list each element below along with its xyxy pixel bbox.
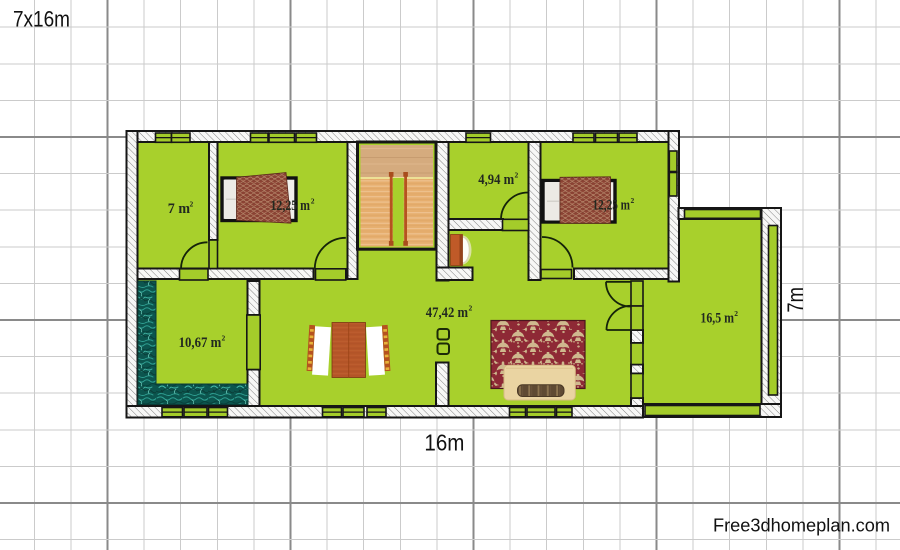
svg-text:4,94 m: 4,94 m [478, 172, 514, 188]
svg-text:2: 2 [190, 200, 194, 209]
svg-text:7m: 7m [783, 287, 808, 313]
svg-text:2: 2 [469, 304, 473, 313]
svg-text:7 m: 7 m [168, 201, 191, 217]
svg-text:2: 2 [515, 171, 519, 180]
svg-text:12,25 m: 12,25 m [593, 198, 631, 214]
svg-text:2: 2 [222, 334, 226, 343]
svg-text:16,5 m: 16,5 m [700, 311, 734, 327]
svg-text:2: 2 [631, 196, 635, 205]
svg-text:2: 2 [734, 309, 738, 318]
svg-text:47,42 m: 47,42 m [426, 305, 469, 321]
svg-text:Free3dhomeplan.com: Free3dhomeplan.com [713, 515, 890, 536]
svg-text:10,67 m: 10,67 m [179, 335, 222, 351]
svg-text:12,25 m: 12,25 m [271, 198, 311, 214]
svg-text:2: 2 [311, 197, 315, 206]
svg-text:7x16m: 7x16m [13, 7, 70, 32]
svg-text:16m: 16m [424, 430, 464, 456]
